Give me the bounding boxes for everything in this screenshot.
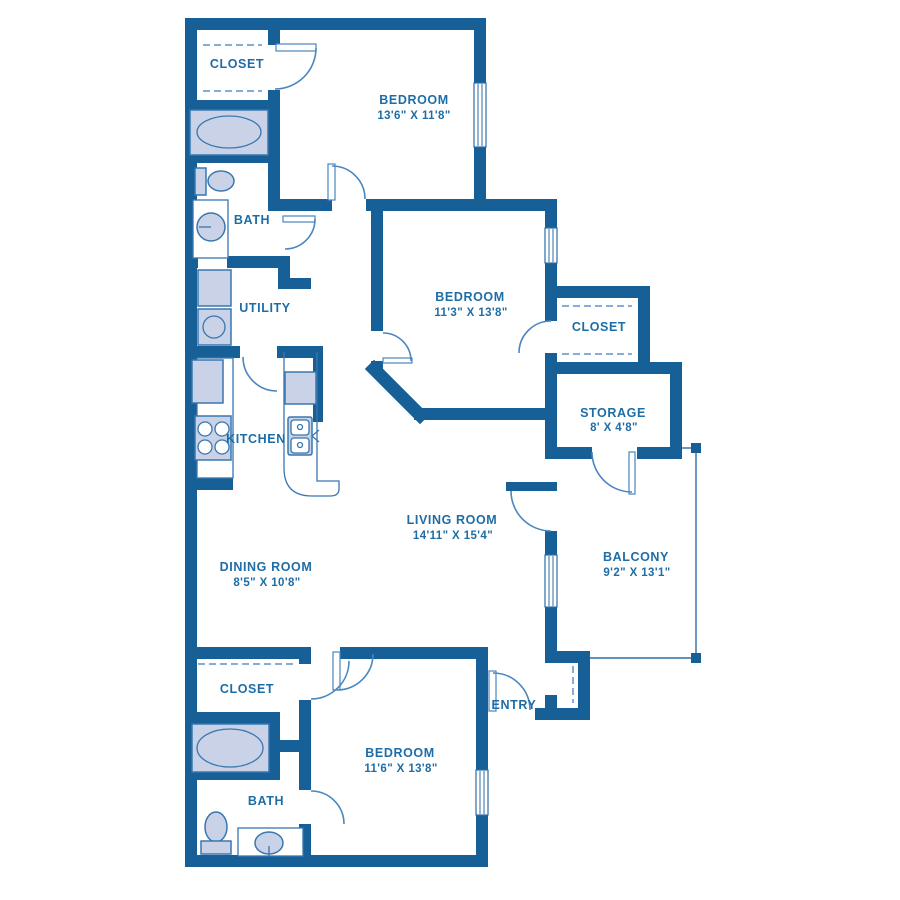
wall-segment-diagonal bbox=[374, 369, 420, 415]
wall-segment bbox=[414, 408, 557, 420]
balcony-post bbox=[691, 653, 701, 663]
room-dims-storage: 8' X 4'8" bbox=[590, 422, 638, 434]
wall-segment bbox=[474, 18, 486, 83]
room-dims-bedroom-middle: 11'3" X 13'8" bbox=[434, 307, 507, 319]
wall-segment bbox=[476, 815, 488, 855]
wall-segment bbox=[476, 659, 488, 770]
room-label-closet-top: CLOSET bbox=[210, 57, 264, 71]
wall-segment bbox=[545, 286, 650, 298]
room-label-bath-top: BATH bbox=[234, 213, 270, 227]
wall-segment bbox=[340, 647, 488, 659]
wall-segment bbox=[185, 647, 303, 659]
fridge-icon bbox=[192, 360, 223, 403]
bathtub-icon bbox=[192, 724, 269, 772]
wall-segment bbox=[545, 531, 557, 555]
room-label-balcony: BALCONY bbox=[603, 550, 669, 564]
wall-segment bbox=[535, 708, 590, 720]
wall-segment bbox=[545, 447, 592, 459]
room-label-utility: UTILITY bbox=[239, 301, 290, 315]
wall-segment bbox=[268, 90, 280, 199]
sink-icon bbox=[238, 828, 303, 856]
door-balcony bbox=[511, 491, 551, 531]
window bbox=[476, 770, 488, 815]
room-dims-dining: 8'5" X 10'8" bbox=[233, 577, 300, 589]
floor-plan: CLOSET BEDROOM 13'6" X 11'8" BATH UTILIT… bbox=[0, 0, 900, 900]
room-label-storage: STORAGE bbox=[580, 406, 646, 420]
wall-segment bbox=[185, 855, 488, 867]
room-dims-balcony: 9'2" X 13'1" bbox=[603, 567, 670, 579]
door-middle-closet bbox=[519, 321, 551, 353]
wall-segment bbox=[545, 297, 557, 321]
dishwasher-icon bbox=[285, 372, 316, 404]
room-label-bedroom-bottom: BEDROOM bbox=[365, 746, 434, 760]
wall-segment bbox=[185, 100, 268, 110]
toilet-icon bbox=[195, 168, 234, 195]
room-dims-bedroom-top: 13'6" X 11'8" bbox=[377, 110, 450, 122]
room-label-dining: DINING ROOM bbox=[220, 560, 313, 574]
door-storage bbox=[592, 452, 635, 494]
window bbox=[474, 83, 486, 147]
balcony-post bbox=[691, 443, 701, 453]
wall-segment bbox=[545, 211, 557, 228]
sink-icon bbox=[193, 200, 228, 258]
door-bottom-closet bbox=[311, 661, 349, 699]
wall-segment bbox=[474, 147, 486, 202]
wall-segment bbox=[670, 362, 682, 459]
bathtub-icon bbox=[190, 110, 268, 155]
door-top-closet bbox=[275, 44, 316, 89]
floor-plan-drawing: CLOSET BEDROOM 13'6" X 11'8" BATH UTILIT… bbox=[0, 0, 900, 900]
room-label-living: LIVING ROOM bbox=[407, 513, 498, 527]
room-label-bedroom-top: BEDROOM bbox=[379, 93, 448, 107]
door-bottom-bath bbox=[311, 791, 344, 824]
room-label-closet-bottom: CLOSET bbox=[220, 682, 274, 696]
wall-segment bbox=[268, 18, 280, 45]
wall-segment bbox=[185, 18, 480, 30]
room-label-closet-right: CLOSET bbox=[572, 320, 626, 334]
wall-segment bbox=[637, 447, 682, 459]
door-middle-bedroom bbox=[383, 333, 412, 363]
washer-icon bbox=[198, 270, 231, 306]
wall-segment bbox=[638, 286, 650, 374]
room-label-kitchen: KITCHEN bbox=[226, 432, 286, 446]
door-top-bath bbox=[283, 216, 315, 249]
kitchen-sink-icon bbox=[288, 417, 319, 455]
wall-segment bbox=[299, 647, 311, 664]
door-top-bedroom bbox=[328, 164, 365, 200]
wall-segment bbox=[185, 478, 233, 490]
wall-segment bbox=[366, 199, 557, 211]
wall-segment bbox=[185, 712, 280, 724]
wall-segment bbox=[278, 278, 311, 289]
wall-segment bbox=[268, 199, 332, 211]
window bbox=[545, 555, 557, 607]
window bbox=[545, 228, 557, 263]
room-label-bedroom-middle: BEDROOM bbox=[435, 290, 504, 304]
wall-segment bbox=[185, 346, 240, 358]
room-dims-bedroom-bottom: 11'6" X 13'8" bbox=[364, 763, 437, 775]
wall-segment bbox=[545, 695, 557, 708]
wall-segment bbox=[545, 362, 682, 374]
room-label-entry: ENTRY bbox=[492, 698, 537, 712]
balcony-door-header bbox=[506, 482, 557, 491]
wall-segment bbox=[268, 740, 311, 752]
room-label-bath-bottom: BATH bbox=[248, 794, 284, 808]
room-dims-living: 14'11" X 15'4" bbox=[413, 530, 493, 542]
wall-segment bbox=[185, 772, 280, 780]
wall-segment bbox=[185, 155, 268, 163]
door-utility-kitchen bbox=[243, 357, 277, 391]
wall-segment bbox=[371, 199, 383, 331]
toilet-icon bbox=[201, 812, 231, 854]
dryer-icon bbox=[198, 309, 231, 345]
